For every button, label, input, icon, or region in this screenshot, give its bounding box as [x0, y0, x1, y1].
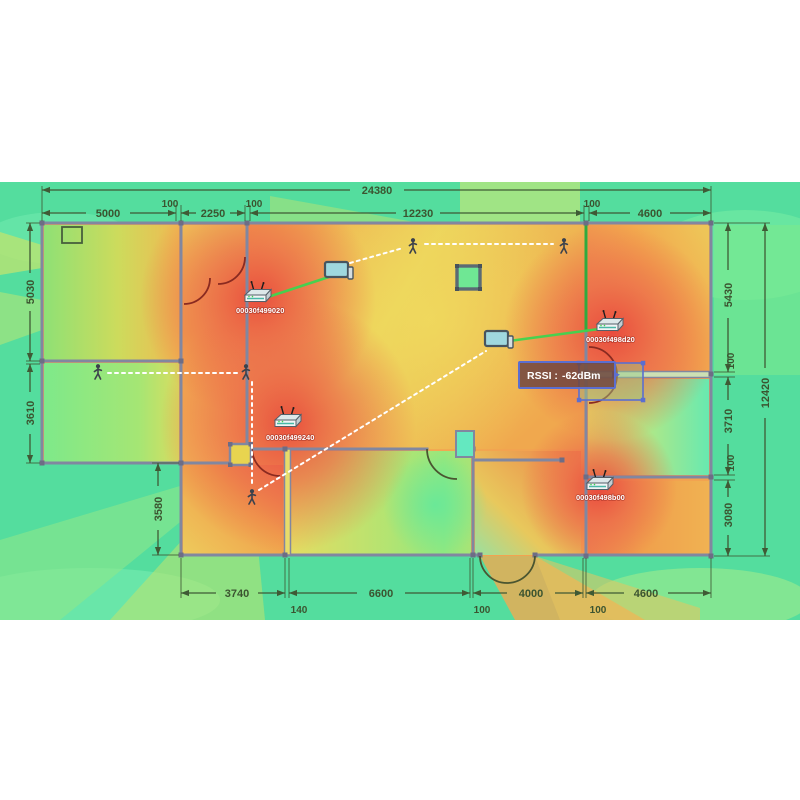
dim-label: 3740 — [225, 588, 249, 600]
coverage-heatmap-scene: 24380 5000 100 2250 100 12230 100 4600 3… — [0, 182, 800, 620]
floorplan-svg: 24380 5000 100 2250 100 12230 100 4600 3… — [0, 182, 800, 620]
dim-label: 6600 — [369, 588, 393, 600]
ap-mac-label: 00030f498d20 — [586, 335, 635, 344]
structural-column — [228, 442, 253, 467]
rssi-label: RSSI : — [527, 370, 558, 382]
dim-label: 5430 — [723, 283, 735, 307]
dim-label: 3610 — [25, 401, 37, 425]
ap-mac-label: 00030f498b00 — [576, 493, 625, 502]
dim-label: 100 — [162, 199, 179, 210]
ap-mac-label: 00030f499020 — [236, 306, 284, 315]
ap-mac-label: 00030f499240 — [266, 433, 314, 442]
desk[interactable] — [455, 264, 482, 291]
selection-handle[interactable] — [577, 398, 582, 403]
dim-label: 100 — [726, 454, 737, 471]
dim-label: 100 — [474, 605, 491, 616]
rssi-tooltip: RSSI : -62dBm — [519, 362, 615, 388]
dim-label: 3710 — [723, 409, 735, 433]
dim-label-total-width: 24380 — [362, 185, 393, 197]
dim-label: 2250 — [201, 208, 225, 220]
laptop-icon[interactable] — [325, 262, 353, 279]
dim-label: 140 — [291, 605, 308, 616]
dim-label: 100 — [584, 199, 601, 210]
dim-label: 5000 — [96, 208, 120, 220]
dim-label: 3080 — [723, 503, 735, 527]
dim-label: 100 — [246, 199, 263, 210]
dim-label: 4000 — [519, 588, 543, 600]
dim-label: 100 — [590, 605, 607, 616]
shaft-closet — [456, 431, 474, 457]
dim-label-total-height: 12420 — [760, 378, 772, 409]
dim-label: 4600 — [638, 208, 662, 220]
dim-label: 100 — [726, 352, 737, 369]
dim-label: 4600 — [634, 588, 658, 600]
dim-label: 5030 — [25, 280, 37, 304]
selection-handle[interactable] — [641, 361, 646, 366]
dim-label: 3580 — [153, 497, 165, 521]
selection-handle[interactable] — [641, 398, 646, 403]
dim-top-total: 24380 — [42, 185, 711, 197]
rssi-value: -62dBm — [562, 370, 601, 382]
laptop-icon[interactable] — [485, 331, 513, 348]
dim-label: 12230 — [403, 208, 434, 220]
wall-thick-140[interactable] — [285, 449, 291, 555]
